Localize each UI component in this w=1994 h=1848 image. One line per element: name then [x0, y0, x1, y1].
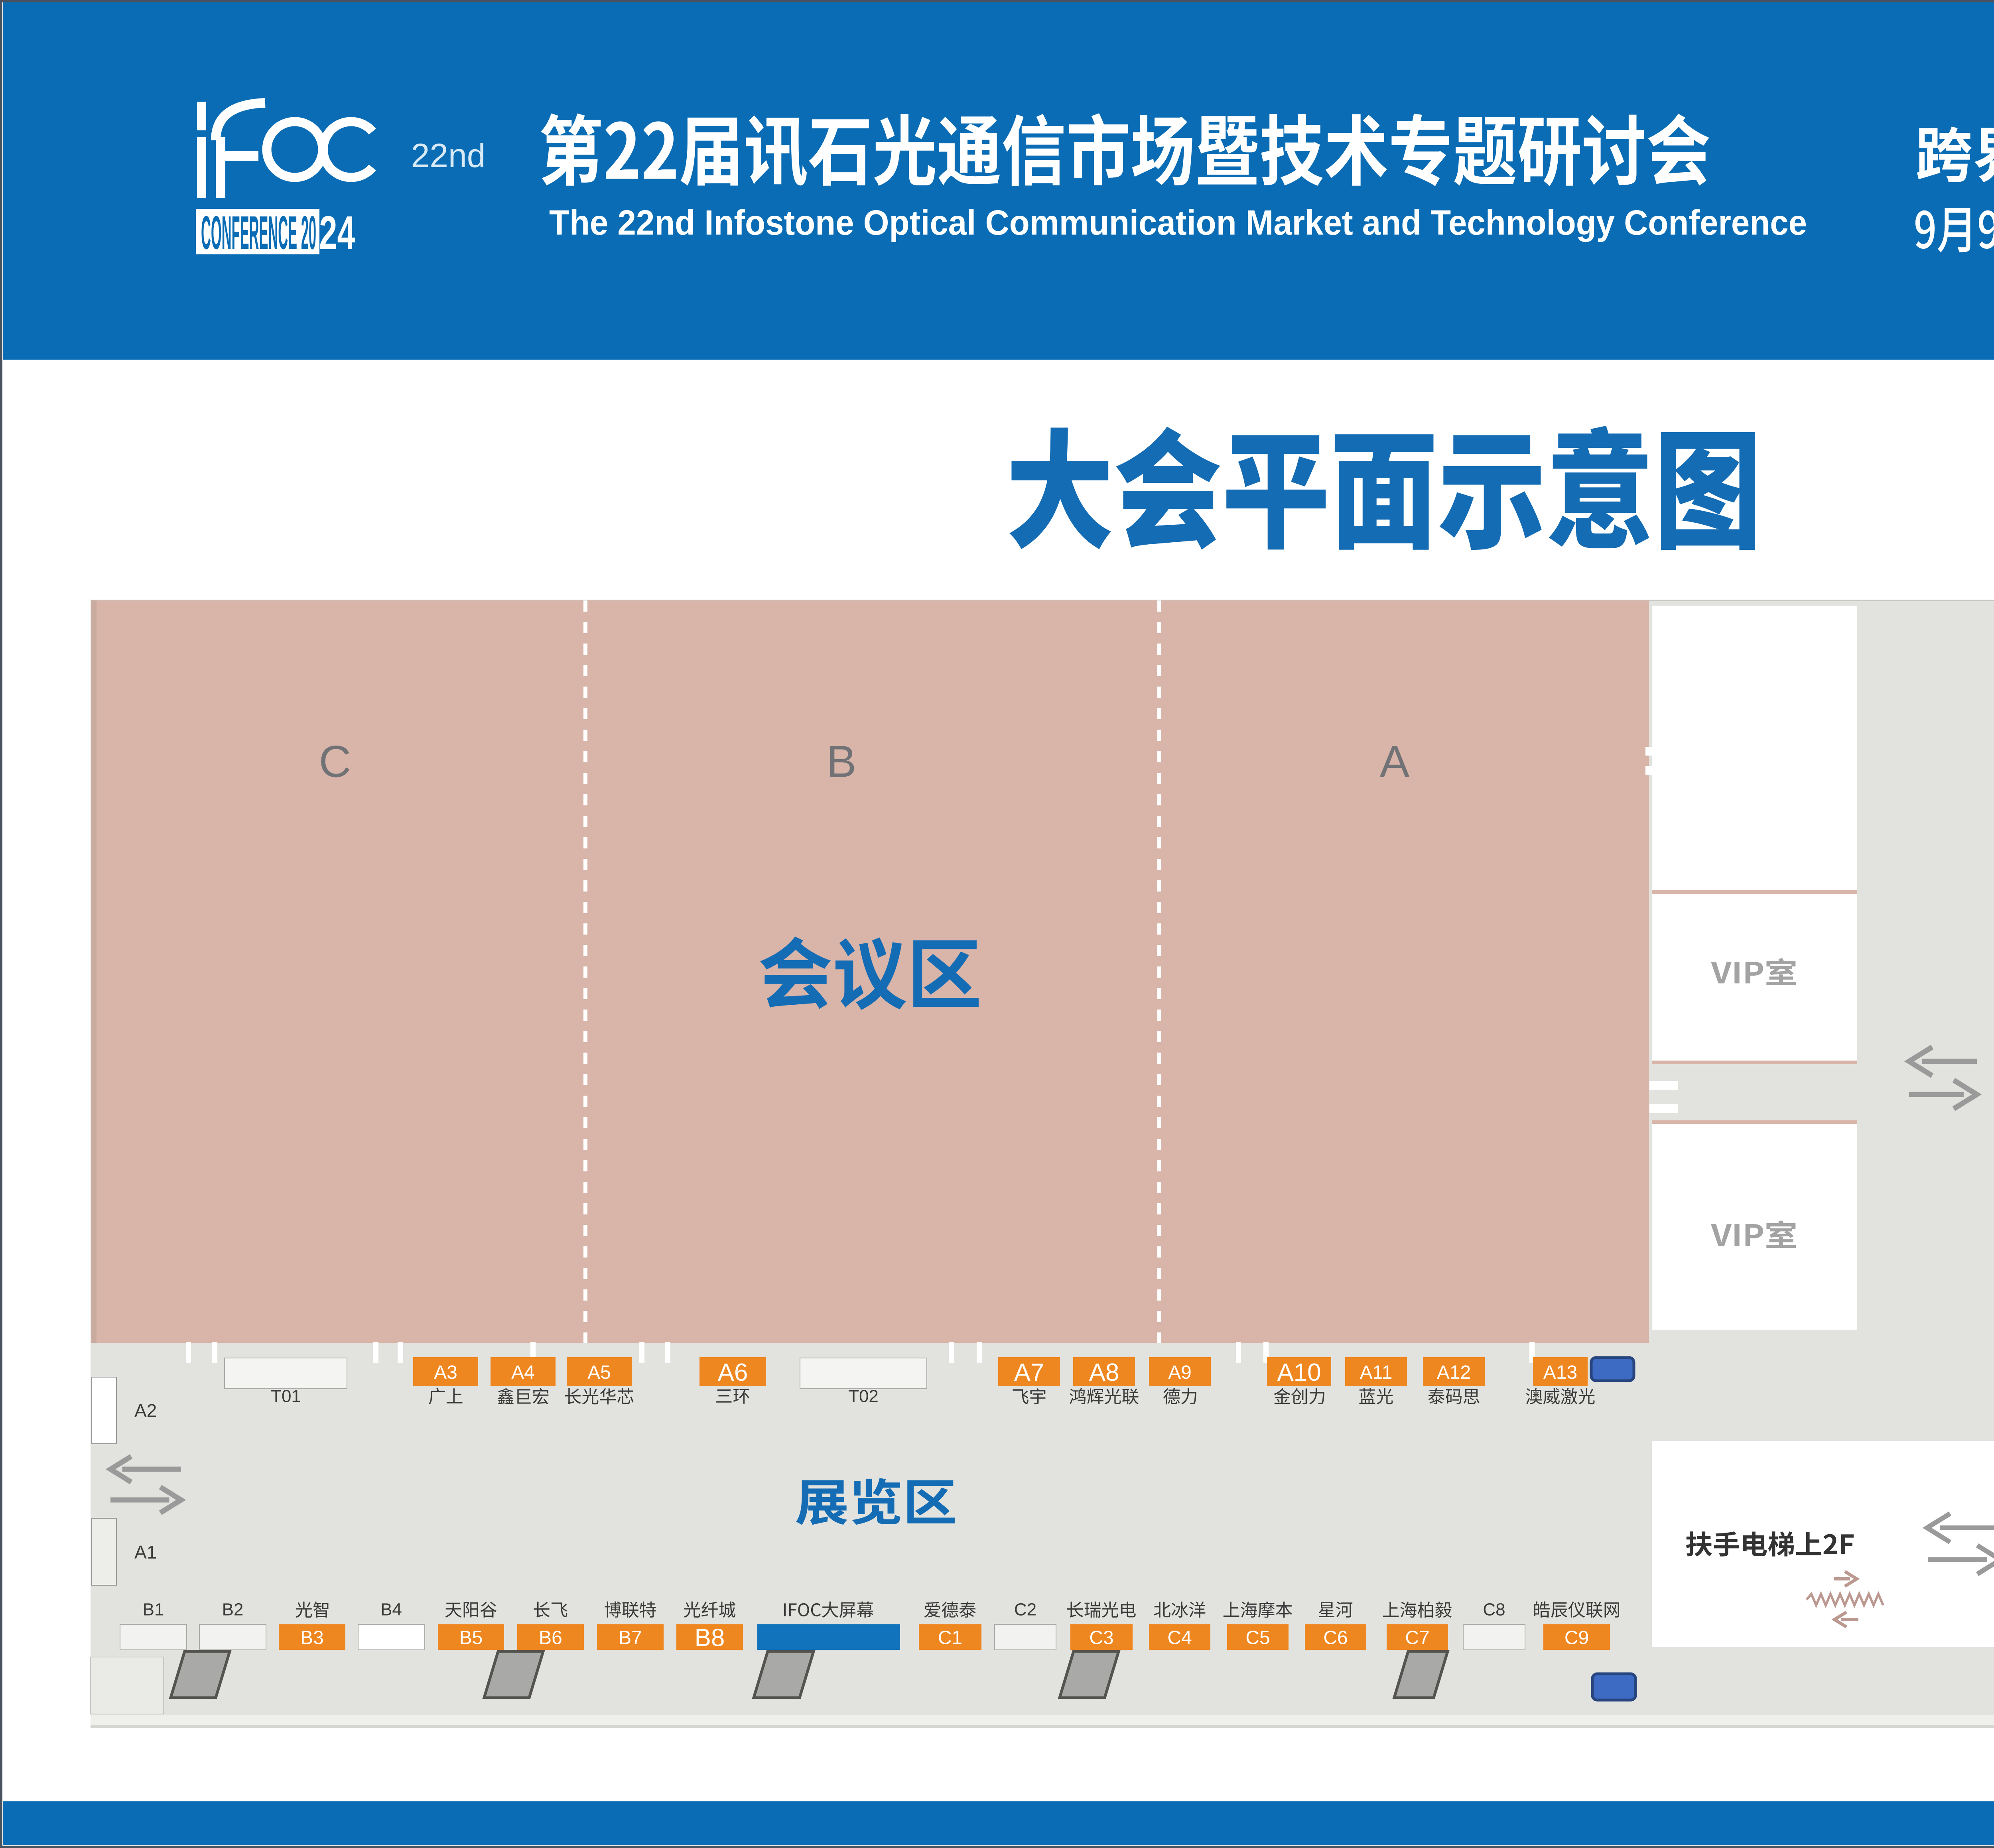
svg-text:B5: B5	[459, 1628, 483, 1649]
svg-text:C5: C5	[1245, 1628, 1270, 1649]
svg-text:C2: C2	[1014, 1600, 1036, 1620]
svg-text:A7: A7	[1014, 1359, 1044, 1386]
svg-text:C3: C3	[1089, 1628, 1113, 1649]
svg-text:B1: B1	[143, 1600, 164, 1620]
svg-text:A5: A5	[587, 1362, 611, 1383]
svg-text:A9: A9	[1168, 1362, 1192, 1383]
svg-text:C6: C6	[1323, 1628, 1348, 1649]
svg-text:T01: T01	[271, 1387, 301, 1406]
svg-text:B2: B2	[222, 1600, 244, 1620]
svg-text:A3: A3	[434, 1362, 457, 1383]
svg-text:B7: B7	[619, 1628, 642, 1649]
svg-text:C4: C4	[1167, 1628, 1192, 1649]
svg-text:A2: A2	[134, 1400, 157, 1421]
svg-text:C1: C1	[938, 1628, 962, 1649]
svg-text:C8: C8	[1483, 1600, 1505, 1620]
svg-text:T02: T02	[848, 1387, 879, 1406]
svg-text:A11: A11	[1360, 1362, 1393, 1383]
svg-text:A8: A8	[1089, 1359, 1119, 1386]
svg-text:22nd: 22nd	[411, 137, 486, 174]
svg-text:B8: B8	[695, 1624, 725, 1652]
svg-text:A10: A10	[1277, 1359, 1321, 1386]
svg-text:The 22nd Infostone Optical Com: The 22nd Infostone Optical Communication…	[549, 203, 1807, 242]
svg-text:CONFERENCE 20: CONFERENCE 20	[201, 207, 316, 260]
svg-text:B4: B4	[380, 1600, 402, 1620]
svg-text:A: A	[1380, 737, 1410, 787]
svg-text:C9: C9	[1564, 1628, 1589, 1649]
svg-text:A1: A1	[134, 1542, 157, 1563]
svg-text:A6: A6	[718, 1359, 748, 1386]
svg-text:A13: A13	[1543, 1362, 1577, 1383]
svg-text:B6: B6	[539, 1628, 562, 1649]
svg-text:24: 24	[319, 207, 355, 260]
svg-text:A4: A4	[511, 1362, 535, 1383]
svg-text:C7: C7	[1405, 1628, 1429, 1649]
svg-text:A12: A12	[1437, 1362, 1471, 1383]
svg-text:C: C	[319, 737, 351, 787]
svg-text:B3: B3	[300, 1628, 324, 1649]
svg-text:B: B	[827, 737, 857, 787]
